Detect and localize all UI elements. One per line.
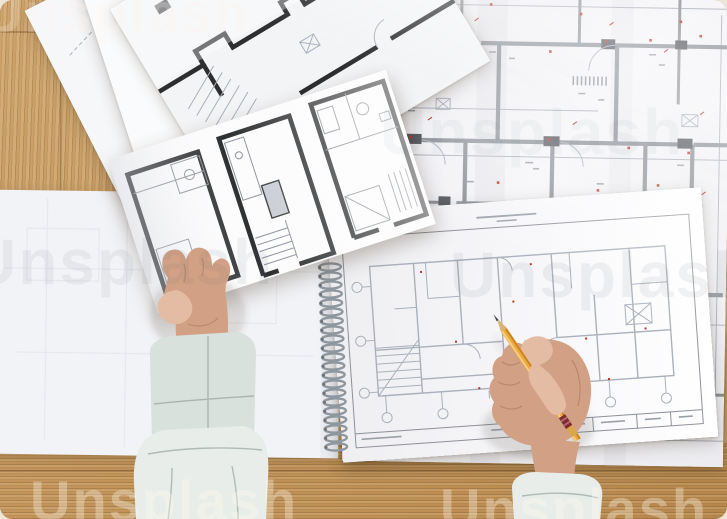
left-hand xyxy=(128,244,278,519)
left-sleeve xyxy=(134,426,269,519)
pencil-graphite xyxy=(493,314,498,321)
photo-architect-blueprints: Unsplash Unsplash Unsplash Unsplash Unsp… xyxy=(0,0,727,519)
right-hand xyxy=(452,310,622,519)
spiral-binding xyxy=(314,261,353,452)
pencil-end xyxy=(569,427,575,435)
